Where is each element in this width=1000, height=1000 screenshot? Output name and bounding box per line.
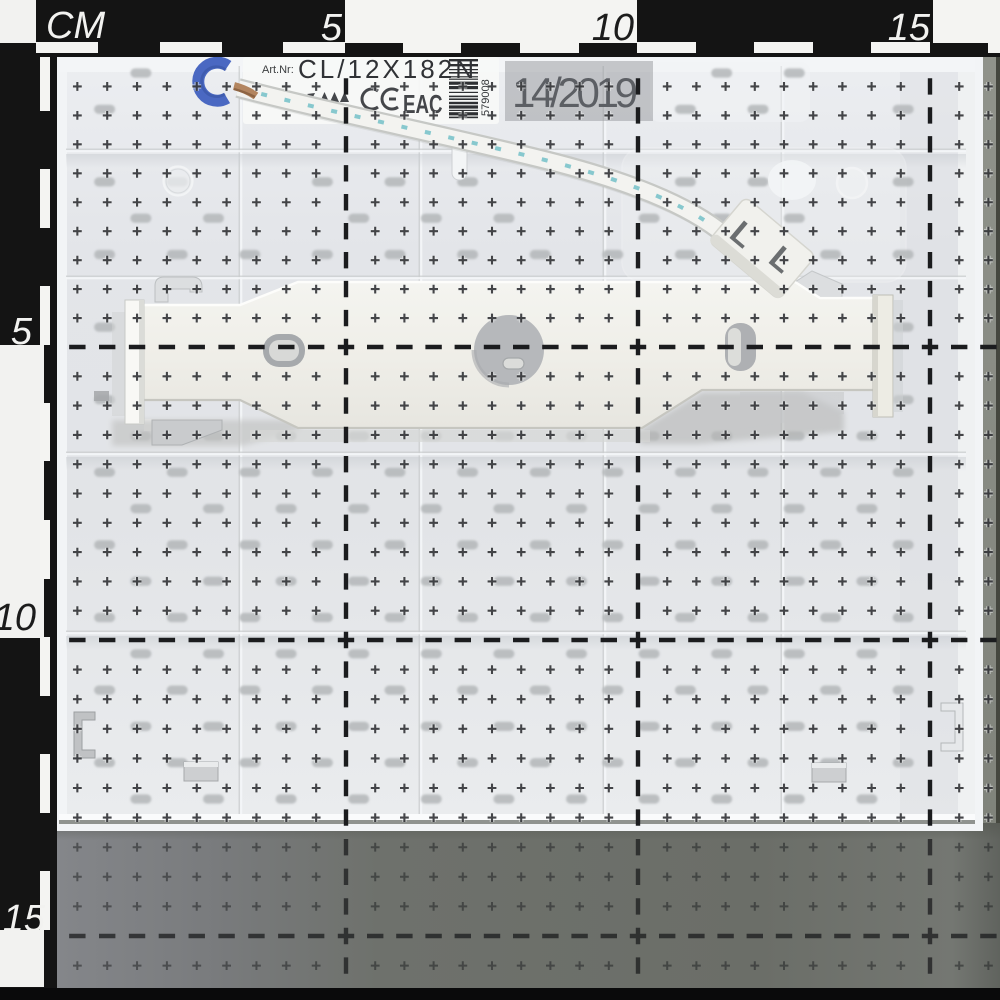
svg-text:Art.Nr:: Art.Nr: [262,64,294,76]
svg-text:CM: CM [46,5,105,47]
svg-text:10: 10 [592,7,634,49]
svg-text:14/2019: 14/2019 [512,69,638,116]
svg-text:5: 5 [321,7,343,49]
svg-text:10: 10 [0,597,36,639]
svg-text:15: 15 [3,898,46,940]
svg-text:15: 15 [888,7,931,49]
svg-text:CL/12X182N: CL/12X182N [298,54,474,84]
svg-text:5: 5 [11,311,33,353]
